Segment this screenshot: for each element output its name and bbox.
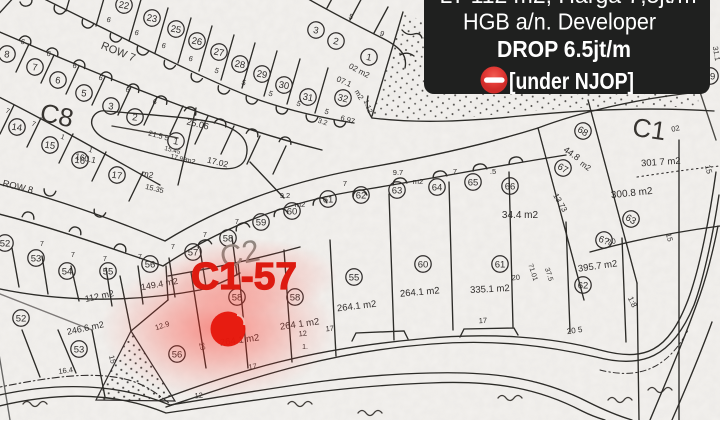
svg-text:DROP 6.5jt/m: DROP 6.5jt/m (497, 36, 631, 62)
svg-text:C1-57: C1-57 (191, 256, 297, 298)
svg-text:LT 112 m2, Harga 7,5jt/m: LT 112 m2, Harga 7,5jt/m (440, 0, 697, 8)
svg-text:[under NJOP]: [under NJOP] (509, 68, 634, 94)
svg-text:HGB a/n. Developer: HGB a/n. Developer (463, 9, 656, 35)
